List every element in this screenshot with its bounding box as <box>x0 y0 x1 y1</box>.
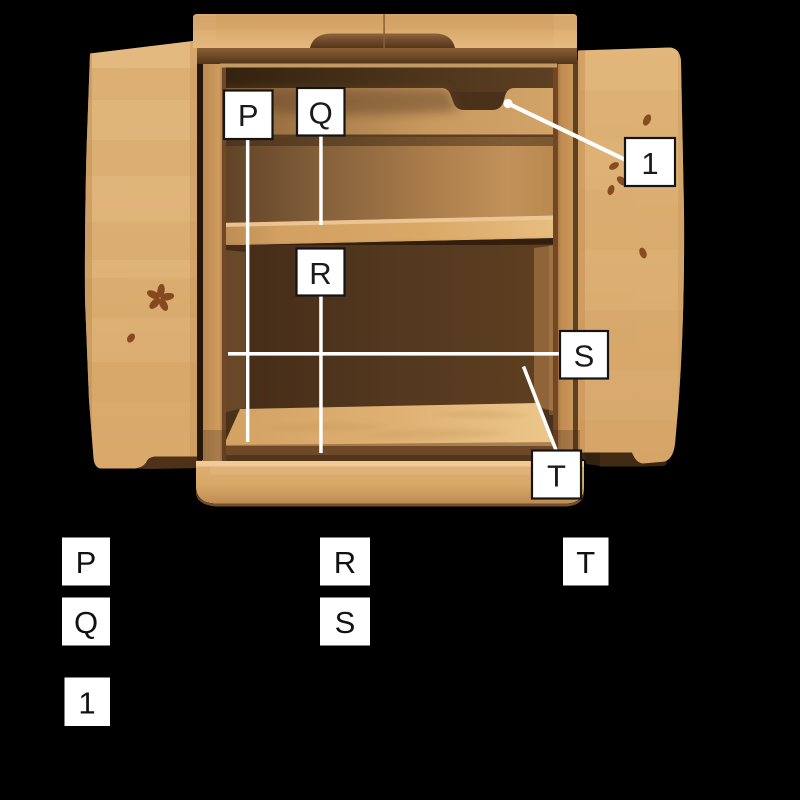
svg-text:P: P <box>76 545 97 580</box>
svg-text:S: S <box>335 605 356 640</box>
svg-text:1: 1 <box>641 146 658 181</box>
svg-text:Q: Q <box>74 605 98 640</box>
svg-text:R: R <box>309 256 331 291</box>
svg-text:Q: Q <box>309 95 333 130</box>
svg-text:T: T <box>576 545 595 580</box>
svg-text:1: 1 <box>78 686 95 721</box>
svg-text:T: T <box>547 458 566 493</box>
svg-text:S: S <box>574 339 595 374</box>
svg-text:P: P <box>238 98 259 133</box>
svg-text:R: R <box>334 545 356 580</box>
